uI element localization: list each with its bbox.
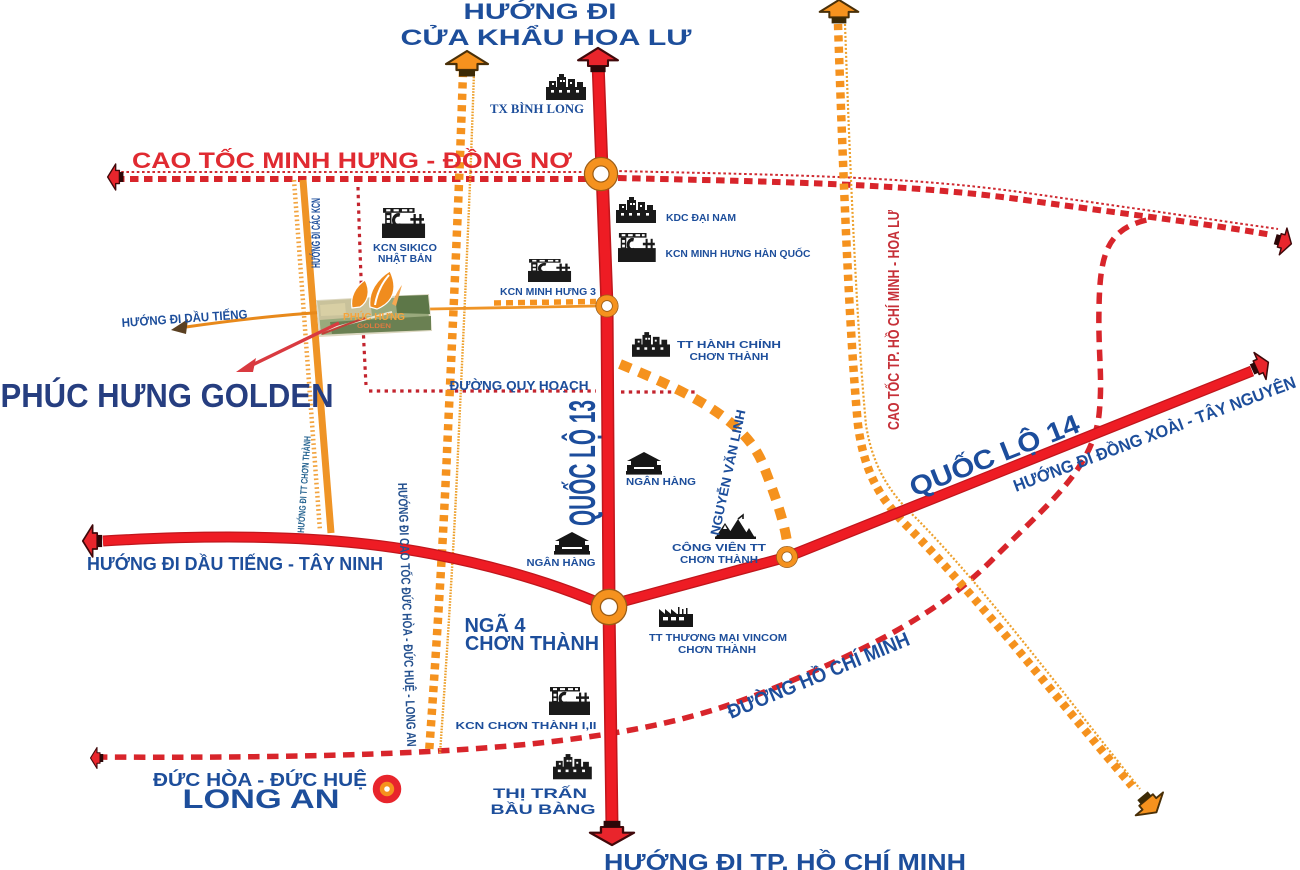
svg-text:HƯỚNG ĐI CÁC KCN: HƯỚNG ĐI CÁC KCN: [308, 198, 323, 268]
svg-text:KDC ĐẠI NAM: KDC ĐẠI NAM: [666, 213, 736, 224]
svg-text:KCN MINH HƯNG 3: KCN MINH HƯNG 3: [500, 287, 596, 298]
svg-text:THỊ TRẤN: THỊ TRẤN: [493, 785, 587, 801]
svg-text:KCN MINH HƯNG HÀN QUỐC: KCN MINH HƯNG HÀN QUỐC: [666, 246, 811, 260]
svg-text:NGÂN HÀNG: NGÂN HÀNG: [626, 475, 696, 488]
svg-text:PHÚC HƯNG GOLDEN: PHÚC HƯNG GOLDEN: [1, 377, 334, 414]
svg-text:KCN CHƠN THÀNH I,II: KCN CHƠN THÀNH I,II: [456, 719, 597, 732]
svg-text:CHƠN THÀNH: CHƠN THÀNH: [678, 643, 756, 656]
svg-text:TT THƯƠNG MẠI VINCOM: TT THƯƠNG MẠI VINCOM: [649, 632, 787, 644]
svg-text:NGÂN HÀNG: NGÂN HÀNG: [527, 556, 596, 569]
svg-text:TT HÀNH CHÍNH: TT HÀNH CHÍNH: [677, 338, 781, 351]
svg-text:PHÚC HƯNG: PHÚC HƯNG: [343, 310, 405, 323]
svg-text:HƯỚNG ĐI: HƯỚNG ĐI: [464, 0, 617, 24]
svg-text:CỬA KHẨU HOA LƯ: CỬA KHẨU HOA LƯ: [401, 25, 693, 50]
svg-text:HƯỚNG ĐI TP. HỒ CHÍ MINH: HƯỚNG ĐI TP. HỒ CHÍ MINH: [604, 848, 966, 870]
svg-text:KCN SIKICO: KCN SIKICO: [373, 243, 437, 254]
svg-text:NHẬT BẢN: NHẬT BẢN: [378, 252, 432, 265]
svg-text:CAO TỐC TP. HỒ CHÍ MINH - HOA: CAO TỐC TP. HỒ CHÍ MINH - HOA LƯ: [883, 209, 903, 430]
svg-text:QUỐC LỘ 13: QUỐC LỘ 13: [561, 400, 603, 526]
svg-text:GOLDEN: GOLDEN: [357, 324, 391, 330]
svg-text:ĐƯỜNG QUY HOẠCH: ĐƯỜNG QUY HOẠCH: [450, 378, 589, 393]
svg-text:CAO TỐC MINH HƯNG - ĐỒNG NƠ: CAO TỐC MINH HƯNG - ĐỒNG NƠ: [132, 147, 572, 173]
svg-text:CHƠN THÀNH: CHƠN THÀNH: [465, 632, 599, 655]
svg-text:BẦU BÀNG: BẦU BÀNG: [491, 801, 596, 817]
svg-text:CHƠN THÀNH: CHƠN THÀNH: [690, 350, 769, 363]
svg-text:CÔNG VIÊN TT: CÔNG VIÊN TT: [672, 541, 767, 554]
svg-text:HƯỚNG ĐI DẦU TIẾNG - TÂY NINH: HƯỚNG ĐI DẦU TIẾNG - TÂY NINH: [87, 553, 383, 574]
svg-text:CHƠN THÀNH: CHƠN THÀNH: [680, 553, 758, 566]
svg-text:TX BÌNH LONG: TX BÌNH LONG: [490, 102, 584, 116]
svg-text:LONG AN: LONG AN: [183, 784, 340, 814]
